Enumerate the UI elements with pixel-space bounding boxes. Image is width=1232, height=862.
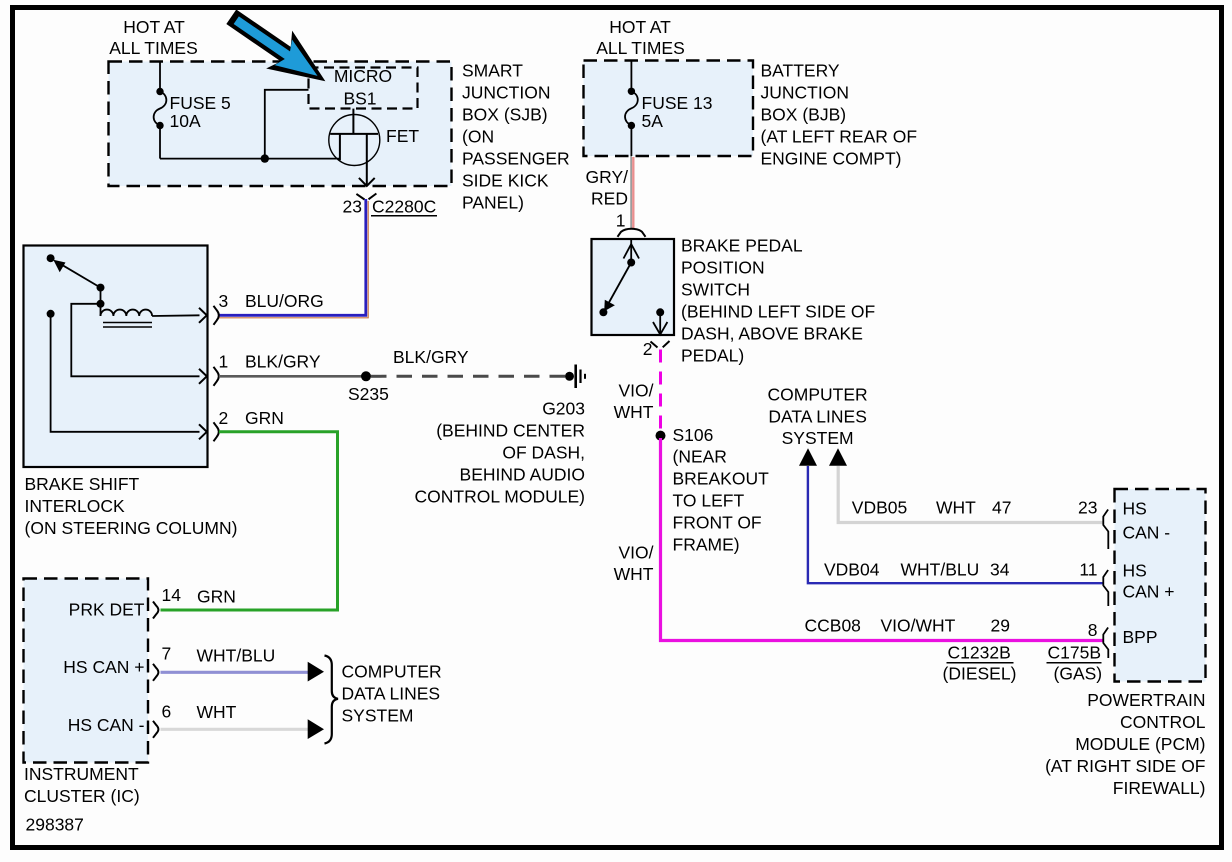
svg-text:COMPUTER: COMPUTER bbox=[342, 662, 442, 682]
svg-text:29: 29 bbox=[991, 616, 1010, 636]
svg-text:BOX (SJB): BOX (SJB) bbox=[462, 105, 548, 125]
svg-text:BLK/GRY: BLK/GRY bbox=[245, 352, 321, 372]
svg-text:VDB05: VDB05 bbox=[852, 498, 907, 518]
svg-text:10A: 10A bbox=[170, 111, 201, 131]
svg-text:VDB04: VDB04 bbox=[824, 560, 880, 580]
svg-text:23: 23 bbox=[1078, 498, 1097, 518]
svg-text:BRAKE SHIFT: BRAKE SHIFT bbox=[25, 474, 140, 494]
svg-text:JUNCTION: JUNCTION bbox=[462, 83, 550, 103]
svg-text:MODULE (PCM): MODULE (PCM) bbox=[1075, 734, 1205, 754]
svg-text:FET: FET bbox=[386, 126, 419, 146]
svg-text:S235: S235 bbox=[348, 384, 389, 404]
svg-text:C175B: C175B bbox=[1048, 643, 1102, 663]
svg-text:(DIESEL): (DIESEL) bbox=[943, 664, 1017, 684]
svg-text:(NEAR: (NEAR bbox=[673, 447, 727, 467]
svg-text:(ON STEERING COLUMN): (ON STEERING COLUMN) bbox=[25, 518, 238, 538]
svg-text:RED: RED bbox=[591, 189, 628, 209]
svg-text:SWITCH: SWITCH bbox=[681, 280, 750, 300]
svg-text:(BEHIND LEFT SIDE OF: (BEHIND LEFT SIDE OF bbox=[681, 302, 875, 322]
svg-text:MICRO: MICRO bbox=[334, 66, 392, 86]
svg-text:JUNCTION: JUNCTION bbox=[761, 83, 849, 103]
svg-text:DATA LINES: DATA LINES bbox=[342, 684, 441, 704]
svg-text:SMART: SMART bbox=[462, 61, 523, 81]
svg-text:TO LEFT: TO LEFT bbox=[673, 491, 745, 511]
svg-text:HOT AT: HOT AT bbox=[609, 17, 671, 37]
svg-text:14: 14 bbox=[162, 585, 182, 605]
svg-text:2: 2 bbox=[219, 408, 229, 428]
svg-text:HS: HS bbox=[1123, 499, 1147, 519]
svg-text:GRN: GRN bbox=[245, 408, 284, 428]
svg-text:CONTROL: CONTROL bbox=[1120, 712, 1206, 732]
svg-text:FIREWALL): FIREWALL) bbox=[1113, 778, 1206, 798]
svg-text:5A: 5A bbox=[642, 111, 664, 131]
svg-text:1: 1 bbox=[616, 211, 626, 231]
svg-text:CLUSTER (IC): CLUSTER (IC) bbox=[24, 786, 140, 806]
svg-text:VIO/: VIO/ bbox=[618, 381, 653, 401]
svg-text:ALL TIMES: ALL TIMES bbox=[596, 38, 685, 58]
svg-text:FRONT OF: FRONT OF bbox=[673, 513, 762, 533]
svg-text:3: 3 bbox=[219, 291, 229, 311]
svg-text:(GAS): (GAS) bbox=[1054, 664, 1103, 684]
svg-text:SYSTEM: SYSTEM bbox=[782, 428, 854, 448]
svg-text:VIO/: VIO/ bbox=[618, 543, 653, 563]
svg-text:WHT: WHT bbox=[197, 702, 237, 722]
svg-text:BOX (BJB): BOX (BJB) bbox=[761, 105, 847, 125]
svg-text:(AT RIGHT SIDE OF: (AT RIGHT SIDE OF bbox=[1045, 756, 1205, 776]
svg-text:PANEL): PANEL) bbox=[462, 193, 524, 213]
svg-text:S106: S106 bbox=[673, 425, 714, 445]
svg-text:HS: HS bbox=[1123, 561, 1147, 581]
svg-text:HOT AT: HOT AT bbox=[123, 17, 185, 37]
svg-text:23: 23 bbox=[343, 197, 362, 217]
svg-text:GRN: GRN bbox=[197, 587, 236, 607]
svg-text:HS CAN +: HS CAN + bbox=[63, 657, 144, 677]
svg-text:ENGINE COMPT): ENGINE COMPT) bbox=[761, 149, 902, 169]
svg-text:(AT LEFT REAR OF: (AT LEFT REAR OF bbox=[761, 127, 918, 147]
svg-text:47: 47 bbox=[992, 498, 1011, 518]
svg-text:FUSE 13: FUSE 13 bbox=[642, 93, 713, 113]
svg-text:BEHIND AUDIO: BEHIND AUDIO bbox=[460, 465, 585, 485]
svg-text:BREAKOUT: BREAKOUT bbox=[673, 469, 770, 489]
svg-text:BATTERY: BATTERY bbox=[761, 61, 840, 81]
svg-text:DASH, ABOVE BRAKE: DASH, ABOVE BRAKE bbox=[681, 324, 863, 344]
svg-text:34: 34 bbox=[990, 560, 1010, 580]
svg-text:BRAKE PEDAL: BRAKE PEDAL bbox=[681, 236, 803, 256]
svg-text:WHT/BLU: WHT/BLU bbox=[901, 560, 980, 580]
svg-text:C2280C: C2280C bbox=[372, 197, 436, 217]
svg-text:WHT: WHT bbox=[936, 498, 976, 518]
svg-text:11: 11 bbox=[1079, 560, 1097, 580]
svg-text:WHT: WHT bbox=[614, 402, 654, 422]
svg-text:CAN -: CAN - bbox=[1123, 523, 1171, 543]
svg-text:1: 1 bbox=[219, 352, 229, 372]
svg-text:BPP: BPP bbox=[1123, 627, 1158, 647]
svg-text:INSTRUMENT: INSTRUMENT bbox=[24, 764, 139, 784]
svg-text:(BEHIND CENTER: (BEHIND CENTER bbox=[436, 421, 585, 441]
svg-text:VIO/WHT: VIO/WHT bbox=[881, 616, 956, 636]
svg-text:WHT: WHT bbox=[614, 564, 654, 584]
svg-text:PEDAL): PEDAL) bbox=[681, 346, 744, 366]
svg-text:SYSTEM: SYSTEM bbox=[342, 706, 414, 726]
svg-text:SIDE KICK: SIDE KICK bbox=[462, 171, 549, 191]
svg-text:DATA LINES: DATA LINES bbox=[768, 407, 867, 427]
svg-text:INTERLOCK: INTERLOCK bbox=[25, 496, 125, 516]
svg-text:POWERTRAIN: POWERTRAIN bbox=[1087, 690, 1205, 710]
svg-text:ALL TIMES: ALL TIMES bbox=[109, 38, 198, 58]
svg-text:FRAME): FRAME) bbox=[673, 535, 740, 555]
svg-text:OF DASH,: OF DASH, bbox=[502, 443, 585, 463]
svg-text:BLK/GRY: BLK/GRY bbox=[393, 347, 469, 367]
svg-text:GRY/: GRY/ bbox=[586, 167, 629, 187]
svg-text:298387: 298387 bbox=[26, 815, 84, 835]
svg-text:7: 7 bbox=[162, 644, 172, 664]
svg-text:POSITION: POSITION bbox=[681, 258, 765, 278]
svg-text:C1232B: C1232B bbox=[948, 643, 1011, 663]
svg-text:FUSE 5: FUSE 5 bbox=[170, 93, 231, 113]
svg-text:COMPUTER: COMPUTER bbox=[768, 385, 868, 405]
svg-text:WHT/BLU: WHT/BLU bbox=[197, 646, 276, 666]
svg-text:PASSENGER: PASSENGER bbox=[462, 149, 570, 169]
svg-text:CCB08: CCB08 bbox=[805, 616, 861, 636]
svg-text:CAN +: CAN + bbox=[1123, 582, 1175, 602]
svg-text:6: 6 bbox=[162, 702, 172, 722]
svg-text:BS1: BS1 bbox=[343, 89, 376, 109]
svg-text:BLU/ORG: BLU/ORG bbox=[245, 291, 324, 311]
svg-text:(ON: (ON bbox=[462, 127, 494, 147]
svg-text:G203: G203 bbox=[542, 399, 585, 419]
svg-text:PRK DET: PRK DET bbox=[69, 600, 145, 620]
svg-text:CONTROL MODULE): CONTROL MODULE) bbox=[415, 487, 585, 507]
svg-text:HS CAN -: HS CAN - bbox=[68, 715, 145, 735]
svg-text:8: 8 bbox=[1088, 620, 1098, 640]
